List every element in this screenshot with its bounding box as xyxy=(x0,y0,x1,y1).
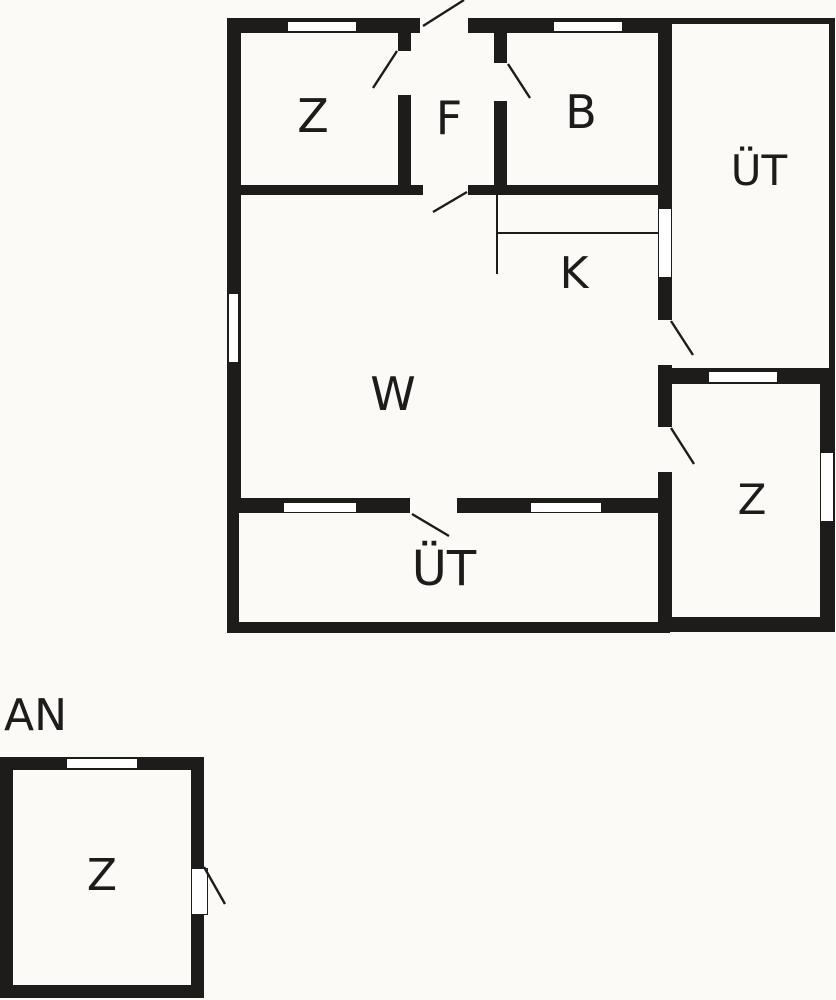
door-swing-f-to-z xyxy=(373,51,397,88)
wall-west xyxy=(227,18,241,513)
wall-east-seg4 xyxy=(658,472,672,617)
wall-divider-zf-bottom xyxy=(398,97,411,185)
wall-terrace-bottom-west xyxy=(227,513,239,632)
door-jamb-zf-bottom xyxy=(398,95,411,97)
door-swing-w-to-z2 xyxy=(671,428,694,464)
kitchen-boundary-line-h xyxy=(497,232,659,234)
floor-plan-canvas: Z F B ÜT K W Z ÜT AN Z xyxy=(0,0,836,1000)
room-label-w: W xyxy=(370,371,415,417)
wall-divider-zf-top xyxy=(398,33,411,50)
door-swing-f-to-b xyxy=(508,64,530,98)
door-jamb-fb-bottom xyxy=(494,101,507,103)
wall-east-seg2 xyxy=(658,278,672,320)
room-label-k: K xyxy=(560,252,589,296)
window-south-1 xyxy=(283,502,357,513)
wall-annex-west xyxy=(0,757,13,998)
door-annex-east xyxy=(191,868,208,915)
wall-interior-h-left xyxy=(241,185,423,195)
wall-z2-south xyxy=(658,617,835,632)
room-label-z-top-left: Z xyxy=(297,93,329,139)
wall-divider-fb-bottom xyxy=(494,103,507,185)
annex-title: AN xyxy=(4,694,67,738)
wall-east-seg1 xyxy=(658,18,672,208)
door-jamb-fb-top xyxy=(494,61,507,63)
wall-divider-fb-top xyxy=(494,33,507,63)
door-swing-w-to-terrace-bottom xyxy=(412,514,449,536)
room-label-b: B xyxy=(565,89,597,135)
window-annex-north xyxy=(66,758,138,769)
door-swing-entry xyxy=(423,0,464,26)
door-jamb-zf-top xyxy=(398,49,411,51)
door-swing-f-to-w xyxy=(433,192,467,212)
room-label-ut-right: ÜT xyxy=(731,150,787,192)
room-label-z-bottom-right: Z xyxy=(738,479,767,521)
room-label-f: F xyxy=(436,95,462,141)
wall-terrace-right-east-thin xyxy=(829,18,835,368)
room-label-ut-bottom: ÜT xyxy=(412,545,476,593)
door-swing-lines xyxy=(0,0,836,1000)
window-west-w xyxy=(228,293,239,363)
window-kitchen-terrace xyxy=(658,208,672,278)
wall-annex-south xyxy=(0,985,204,998)
window-north-b xyxy=(553,21,623,32)
window-z2-east xyxy=(820,452,834,522)
door-swing-w-to-terrace xyxy=(671,321,693,355)
window-north-z xyxy=(287,21,357,32)
wall-terrace-bottom-south xyxy=(227,622,670,633)
window-south-2 xyxy=(530,502,602,513)
room-label-z-annex: Z xyxy=(87,854,117,898)
kitchen-boundary-line-v xyxy=(496,194,498,274)
wall-terrace-right-top-thin xyxy=(672,18,835,24)
window-z2-north xyxy=(708,371,778,383)
